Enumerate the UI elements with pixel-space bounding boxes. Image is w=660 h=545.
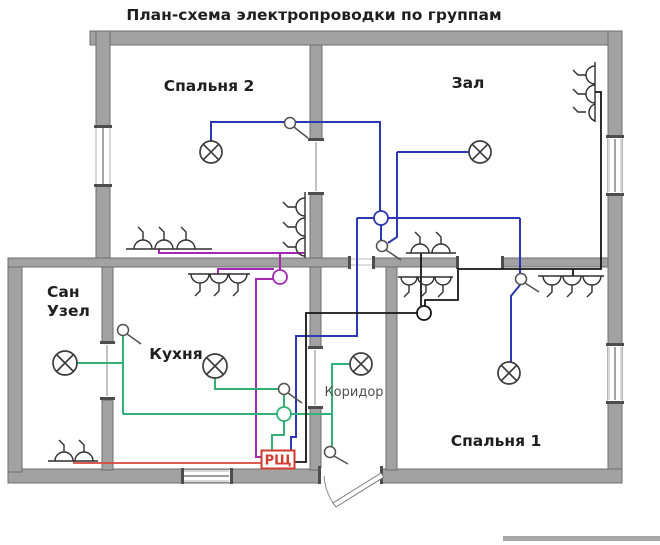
page-title: План-схема электропроводки по группам — [126, 6, 501, 24]
switch-bathroom-icon — [118, 325, 142, 345]
window-right-hall — [606, 135, 624, 196]
wall-left-lower — [8, 258, 22, 472]
room-label-bathroom-line1: Сан — [47, 283, 80, 301]
switch-bedroom2-icon — [285, 118, 309, 139]
wall-mid-3 — [503, 258, 608, 267]
socket-group-bedroom1-right — [538, 276, 604, 297]
door-kitchen-corridor — [308, 346, 323, 409]
window-left — [94, 125, 112, 187]
socket-group-bedroom1-left — [398, 277, 453, 297]
floor-plan-page: РЩ План-схема электропроводки по группам… — [0, 0, 660, 541]
wall-right — [608, 31, 622, 483]
socket-group-bedroom2-bottom — [126, 227, 212, 249]
wire-green-kitchen-light — [215, 378, 278, 389]
socket-group-bathroom — [48, 440, 98, 461]
wall-bedroom2-hall-a — [310, 45, 322, 140]
wall-corridor-right — [386, 267, 397, 470]
room-label-corridor: Коридор — [324, 385, 383, 400]
junction-box-green-icon — [277, 407, 291, 421]
junction-box-purple-icon — [273, 270, 287, 284]
ceiling-light-corridor-icon — [350, 353, 372, 375]
door-bathroom — [100, 341, 115, 400]
wire-purple-to-panel — [256, 279, 273, 457]
wire-purple-kitchen-sockets — [218, 269, 274, 274]
wall-bedroom2-hall-b — [310, 193, 322, 258]
ceiling-light-bedroom1-icon — [498, 362, 520, 384]
door-hall-bedroom1 — [456, 256, 504, 269]
ceiling-light-bathroom-icon — [53, 351, 77, 375]
opening-hall-corridor — [348, 256, 375, 269]
distribution-board-label: РЩ — [265, 454, 292, 469]
switch-bedroom1-icon — [516, 274, 540, 293]
wall-bathroom-right-a — [102, 267, 113, 343]
wire-blue-lighting-group — [211, 122, 520, 451]
wall-bathroom-right-b — [102, 400, 113, 470]
socket-group-hall-bottom — [406, 232, 456, 253]
junction-box-black-icon — [417, 306, 431, 320]
junction-box-blue-icon — [374, 211, 388, 225]
switches — [118, 118, 540, 465]
ceiling-light-bedroom2-icon — [200, 141, 222, 163]
socket-group-hall-wall — [573, 62, 595, 122]
wire-blue-bedroom1-light — [511, 285, 520, 362]
window-right-bedroom1 — [606, 343, 624, 404]
wire-blue-hall-light — [388, 152, 469, 243]
switch-corridor-icon — [325, 447, 349, 465]
room-label-bedroom2: Спальня 2 — [164, 77, 255, 95]
door-bedroom2-hall — [308, 138, 324, 195]
wall-corridor-left-b — [310, 408, 321, 470]
socket-group-kitchen — [188, 274, 250, 296]
wire-blue-bedroom2 — [211, 122, 380, 211]
socket-group-bedroom2-wall — [283, 192, 305, 258]
room-label-kitchen: Кухня — [149, 345, 202, 363]
wall-mid-2 — [374, 258, 458, 267]
wall-top — [90, 31, 622, 45]
ceiling-light-kitchen-icon — [203, 354, 227, 378]
ceiling-light-hall-icon — [469, 141, 491, 163]
wall-mid-1 — [8, 258, 350, 267]
wall-openings — [94, 125, 624, 507]
floor-plan: РЩ План-схема электропроводки по группам… — [0, 0, 660, 541]
wire-black-hall-wall-run — [425, 92, 601, 306]
room-label-hall: Зал — [452, 74, 485, 92]
wall-bottom — [8, 469, 622, 483]
wire-green-to-panel — [272, 421, 284, 451]
bottom-edge-bar — [503, 536, 660, 541]
switch-kitchen-icon — [279, 384, 303, 404]
window-bottom — [181, 468, 233, 484]
room-label-bedroom1: Спальня 1 — [451, 432, 542, 450]
walls — [8, 31, 622, 483]
distribution-board: РЩ — [262, 451, 295, 469]
labels: План-схема электропроводки по группам Сп… — [47, 6, 541, 450]
room-label-bathroom-line2: Узел — [47, 302, 90, 320]
